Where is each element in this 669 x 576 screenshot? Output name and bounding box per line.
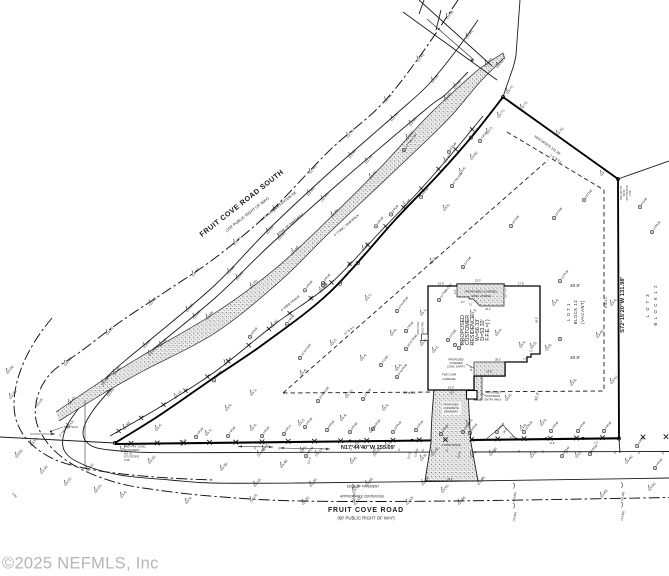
svg-text:3.0': 3.0' xyxy=(529,351,533,353)
svg-text:2.0': 2.0' xyxy=(505,288,507,292)
svg-text:CONC. PORCH: CONC. PORCH xyxy=(471,294,492,298)
svg-text:11.3': 11.3' xyxy=(454,289,457,294)
svg-text:CONCRETE: CONCRETE xyxy=(443,406,458,410)
svg-text:15.8': 15.8' xyxy=(486,370,492,374)
svg-text:F.F.E.=( ): F.F.E.=( ) xyxy=(485,319,491,341)
svg-text:CONC. ENTRY: CONC. ENTRY xyxy=(447,365,466,369)
svg-text:0.29': 0.29' xyxy=(629,190,632,196)
svg-text:COVERED: COVERED xyxy=(449,361,462,365)
svg-text:S72°15'20"W 131.98': S72°15'20"W 131.98' xyxy=(620,276,626,332)
svg-text:40.8': 40.8' xyxy=(570,283,580,288)
svg-text:LNDG PAD: LNDG PAD xyxy=(422,322,425,334)
svg-text:7.0': 7.0' xyxy=(469,303,473,306)
svg-text:B L O C K 1 2: B L O C K 1 2 xyxy=(653,284,658,325)
svg-text:(60' PUBLIC RIGHT OF WAY): (60' PUBLIC RIGHT OF WAY) xyxy=(337,515,395,520)
svg-text:DRIVEWAY: DRIVEWAY xyxy=(444,410,458,414)
svg-text:FRUIT COVE ROAD: FRUIT COVE ROAD xyxy=(328,507,404,514)
svg-text:PROPOSED: PROPOSED xyxy=(443,403,458,407)
svg-text:8.7': 8.7' xyxy=(461,301,465,304)
svg-text:11.8': 11.8' xyxy=(549,442,555,445)
svg-text:40.8': 40.8' xyxy=(570,355,580,360)
svg-text:15.8': 15.8' xyxy=(438,281,444,285)
svg-text:EDGE OF PAVEMENT: EDGE OF PAVEMENT xyxy=(347,485,379,489)
svg-text:8.0': 8.0' xyxy=(505,294,507,298)
svg-text:©2025 NEFMLS, Inc: ©2025 NEFMLS, Inc xyxy=(2,555,159,573)
svg-text:3.7': 3.7' xyxy=(510,435,515,439)
svg-text:23.0': 23.0' xyxy=(448,385,455,389)
svg-text:MONUMENT: MONUMENT xyxy=(124,448,140,452)
svg-text:ENTRY WALK: ENTRY WALK xyxy=(485,398,502,402)
svg-text:L O T 3: L O T 3 xyxy=(645,293,650,317)
svg-text:APPROXIMATE CENTERLINE: APPROXIMATE CENTERLINE xyxy=(340,495,384,499)
svg-text:GARAGE: GARAGE xyxy=(442,377,455,381)
svg-text:NO I.D.: NO I.D. xyxy=(124,451,133,455)
svg-text:(VACANT): (VACANT) xyxy=(580,300,585,324)
svg-text:CONCRETE: CONCRETE xyxy=(486,394,501,398)
svg-text:PROPOSED: PROPOSED xyxy=(486,391,501,395)
svg-text:25' B.R.L.: 25' B.R.L. xyxy=(403,391,416,395)
svg-text:26.2': 26.2' xyxy=(447,478,453,481)
svg-text:BLOCK 12: BLOCK 12 xyxy=(573,300,578,325)
svg-text:PROPOSED: PROPOSED xyxy=(448,358,463,362)
svg-text:6' B.S.L.: 6' B.S.L. xyxy=(604,296,608,308)
svg-text:L O T 1: L O T 1 xyxy=(566,303,571,321)
svg-text:4' WIRE FENCE: 4' WIRE FENCE xyxy=(442,443,461,447)
svg-text:S71°29'39"E: S71°29'39"E xyxy=(124,455,139,459)
svg-text:23.3': 23.3' xyxy=(475,279,481,283)
svg-text:28.5': 28.5' xyxy=(495,357,501,361)
svg-text:16.2': 16.2' xyxy=(449,392,455,395)
svg-text:13.3': 13.3' xyxy=(470,366,473,372)
svg-text:5.4': 5.4' xyxy=(523,359,527,361)
svg-text:10.2': 10.2' xyxy=(485,307,491,311)
svg-text:17.8': 17.8' xyxy=(518,281,524,285)
svg-text:5'X5' CONC: 5'X5' CONC xyxy=(417,321,420,334)
svg-text:0.36': 0.36' xyxy=(124,458,130,462)
svg-text:36.5': 36.5' xyxy=(535,317,539,323)
